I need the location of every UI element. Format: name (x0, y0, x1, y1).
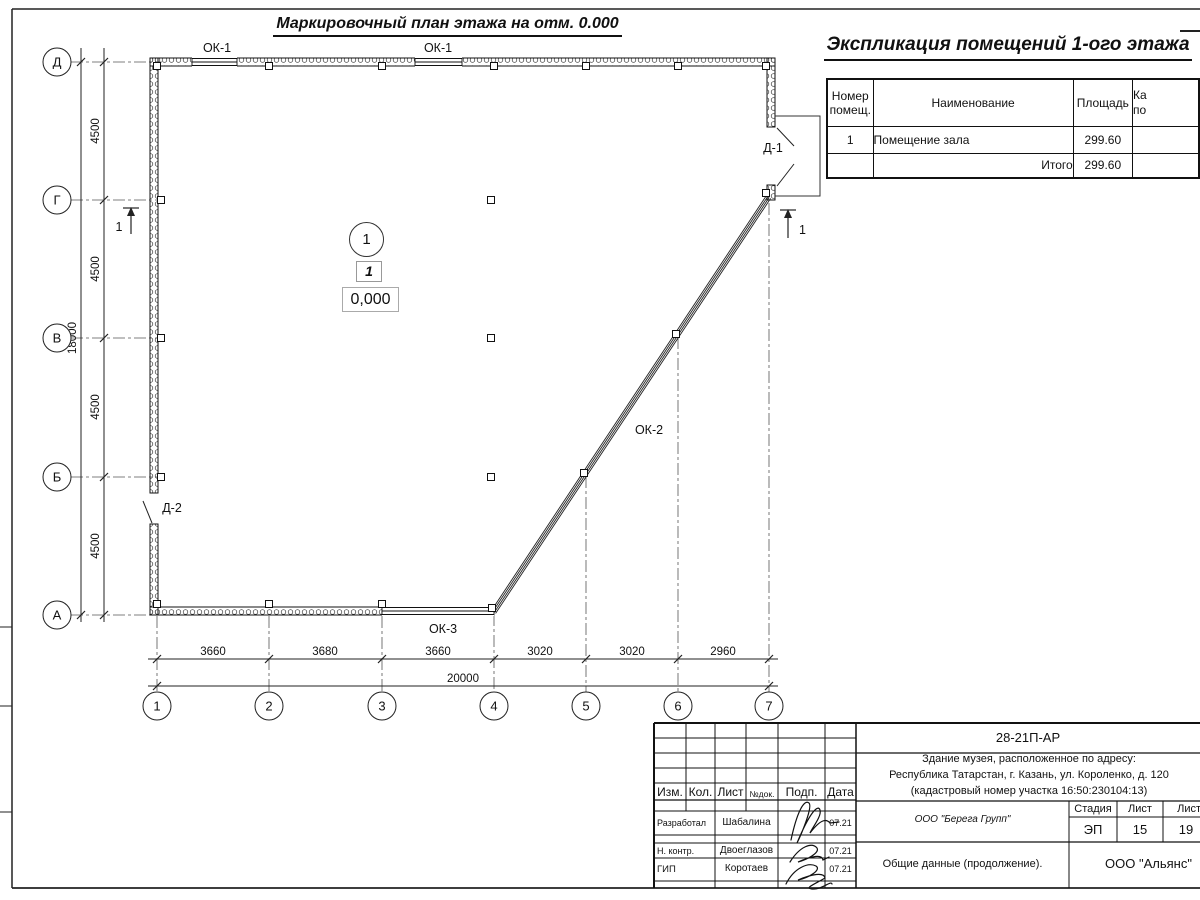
role-razrabotal: Разработал (657, 818, 706, 828)
expl-header-number-l2: помещ. (828, 103, 873, 117)
dim-3020-2: 3020 (619, 646, 645, 658)
sheets-label: Листов (1165, 803, 1200, 815)
stage-value: ЭП (1069, 822, 1117, 837)
col-izm: Изм. (654, 785, 686, 799)
axis-2: 2 (265, 699, 272, 714)
expl-row1-name: Помещение зала (873, 126, 1073, 153)
date-gip: 07.21 (825, 864, 856, 874)
axis-5: 5 (582, 699, 589, 714)
expl-total-row: Итого 299.60 (827, 153, 1199, 178)
expl-total-category (1132, 153, 1199, 178)
door-d2-leaf (143, 501, 152, 523)
company-berega: ООО "Берега Групп" (858, 814, 1067, 825)
label-section-right: 1 (799, 223, 806, 237)
address-line-1: Здание музея, расположенное по адресу: (858, 751, 1200, 767)
name-shabalina: Шабалина (715, 817, 778, 828)
room-number-circle: 1 (349, 222, 384, 257)
address-line-3: (кадастровый номер участка 16:50:230104:… (858, 783, 1200, 799)
dim-3680: 3680 (312, 646, 338, 658)
dim-2960: 2960 (710, 646, 736, 658)
expl-row1-number: 1 (827, 126, 873, 153)
label-ok2: ОК-2 (635, 423, 663, 437)
elevation-marker: 0,000 (342, 287, 399, 312)
axis-d: Д (53, 55, 62, 70)
expl-header-number-l1: Номер (828, 89, 873, 103)
axis-7: 7 (765, 699, 772, 714)
dim-3020-1: 3020 (527, 646, 553, 658)
explication-table: Номер помещ. Наименование Площадь Ка по … (826, 78, 1200, 179)
expl-row-1: 1 Помещение зала 299.60 (827, 126, 1199, 153)
sheets-value: 19 (1163, 822, 1200, 837)
name-dvoeglazov: Двоеглазов (715, 845, 778, 856)
date-razrabotal: 07.21 (825, 818, 856, 828)
expl-header-name: Наименование (873, 79, 1073, 126)
dimension-ticks (77, 58, 773, 690)
axis-1: 1 (153, 699, 160, 714)
stage-label: Стадия (1069, 803, 1117, 815)
plan-title: Маркировочный план этажа на отм. 0.000 (273, 15, 621, 37)
window-ok1-left (192, 57, 237, 67)
label-ok1-left: ОК-1 (203, 41, 231, 55)
sheet-value: 15 (1117, 822, 1163, 837)
col-data: Дата (825, 785, 856, 799)
project-address: Здание музея, расположенное по адресу: Р… (858, 751, 1200, 799)
label-ok1-right: ОК-1 (424, 41, 452, 55)
dim-4500-4: 4500 (90, 533, 102, 559)
columns (154, 63, 770, 612)
label-d2: Д-2 (162, 501, 182, 515)
axis-g: Г (53, 193, 60, 208)
doc-number: 28-21П-АР (856, 730, 1200, 745)
dim-3660-2: 3660 (425, 646, 451, 658)
date-nkontr: 07.21 (825, 846, 856, 856)
axis-v: В (53, 331, 62, 346)
axis-lines (71, 62, 769, 692)
dim-4500-1: 4500 (90, 118, 102, 144)
expl-total-area: 299.60 (1073, 153, 1132, 178)
dim-4500-3: 4500 (90, 394, 102, 420)
label-section-left: 1 (116, 220, 123, 234)
axis-b: Б (53, 470, 62, 485)
col-kol: Кол. (686, 785, 715, 799)
plan-title-wrap: Маркировочный план этажа на отм. 0.000 (240, 15, 655, 37)
dim-3660-1: 3660 (200, 646, 226, 658)
address-line-2: Республика Татарстан, г. Казань, ул. Кор… (858, 767, 1200, 783)
dim-20000: 20000 (447, 673, 479, 685)
axis-a: А (53, 608, 62, 623)
explication-title-wrap: Экспликация помещений 1-ого этажа (812, 34, 1200, 61)
col-list: Лист (715, 785, 746, 799)
dim-4500-2: 4500 (90, 256, 102, 282)
label-d1: Д-1 (763, 141, 783, 155)
plan-labels: ОК-1 ОК-1 ОК-2 ОК-3 Д-1 Д-2 1 1 (116, 41, 806, 636)
axis-4: 4 (490, 699, 497, 714)
expl-header-number: Номер помещ. (827, 79, 873, 126)
signature-dvoeglazov (790, 845, 829, 862)
col-podp: Подп. (778, 785, 825, 799)
expl-row1-category (1132, 126, 1199, 153)
room-number-box: 1 (356, 261, 382, 282)
section-mark-left (123, 207, 139, 234)
expl-header-cat-l2: по (1133, 103, 1198, 118)
expl-total-empty (827, 153, 873, 178)
expl-total-label: Итого (873, 153, 1073, 178)
sheet-label: Лист (1117, 803, 1163, 815)
explication-title: Экспликация помещений 1-ого этажа (824, 34, 1191, 61)
expl-header-area: Площадь (1073, 79, 1132, 126)
drawing-sheet: { "plan": { "title": "Маркировочный план… (0, 0, 1200, 900)
window-ok1-right (415, 57, 462, 67)
vestibule (775, 116, 820, 196)
axis-3: 3 (378, 699, 385, 714)
axis-6: 6 (674, 699, 681, 714)
name-korotaev: Коротаев (715, 863, 778, 874)
walls (150, 58, 775, 615)
col-ndok: №док. (746, 789, 778, 799)
doc-title: Общие данные (продолжение). (858, 858, 1067, 870)
expl-row1-area: 299.60 (1073, 126, 1132, 153)
role-gip: ГИП (657, 864, 676, 875)
window-ok3 (382, 606, 494, 616)
door-d1-leaves (777, 128, 794, 186)
label-ok3: ОК-3 (429, 622, 457, 636)
role-nkontr: Н. контр. (657, 846, 694, 856)
expl-header-category: Ка по (1132, 79, 1199, 126)
company-alliance: ООО "Альянс" (1071, 856, 1200, 871)
diagonal-wall-ok2 (491, 196, 770, 614)
expl-header-cat-l1: Ка (1133, 88, 1198, 103)
section-mark-right (780, 209, 796, 238)
dimension-lines (81, 48, 778, 686)
